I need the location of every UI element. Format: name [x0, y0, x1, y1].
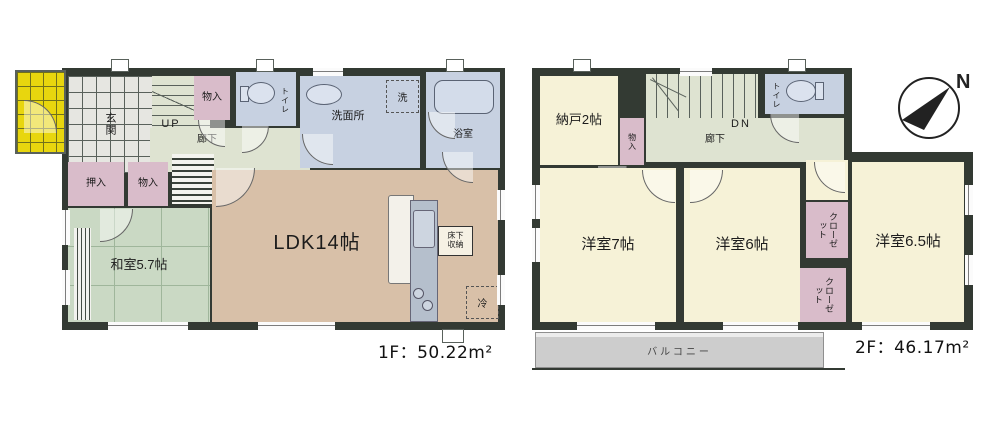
balcony-label: バルコニー — [647, 343, 712, 358]
yukashita-line2: 収納 — [448, 241, 464, 250]
compass-north-label: N — [956, 71, 970, 93]
stove-burner-1 — [413, 288, 424, 299]
closet-oshiire: 押入 — [68, 162, 124, 206]
oshiire-label: 押入 — [86, 178, 106, 190]
stove-burner-2 — [422, 300, 433, 311]
window-room7-west1 — [532, 185, 540, 219]
window-ldk-east2 — [497, 275, 505, 305]
floor1-area-label: 1F：50.22m² — [378, 338, 493, 363]
balcony: バルコニー — [535, 332, 824, 368]
closet-monoire-2f: 物入 — [620, 118, 644, 165]
vent-toilet-2f — [788, 59, 806, 72]
window-stairs-north — [680, 68, 712, 76]
washing-machine-box: 洗 — [386, 80, 419, 113]
window-room65-south — [862, 322, 930, 330]
washitsu-label: 和室5.7帖 — [110, 258, 167, 273]
compass-icon: N — [890, 62, 978, 146]
window-senmenjo-north — [313, 68, 343, 76]
closet-2f-upper-label: クローゼット — [816, 212, 838, 248]
stairs-down — [646, 74, 758, 118]
floor-plan-canvas: 玄関 UP 廊下 物入 トイレ 洗面所 洗 浴室 押入 物入 和室5.7帖 LD… — [0, 0, 1000, 444]
window-room65-east2 — [965, 255, 973, 285]
rouka-2f-label: 廊下 — [694, 130, 736, 145]
bathtub — [434, 80, 494, 114]
nando-label: 納戸2帖 — [556, 113, 602, 128]
ldk-label: LDK14帖 — [252, 228, 382, 252]
room65-label: 洋室6.5帖 — [875, 233, 941, 250]
vent-toilet-1f — [256, 59, 274, 72]
window-washitsu-west2 — [62, 270, 70, 305]
washer-label: 洗 — [398, 89, 408, 104]
monoire-1f-label: 物入 — [138, 178, 158, 190]
toilet-2f-label: トイレ — [770, 76, 783, 114]
stairs-lower-flight — [172, 154, 214, 204]
window-room65-east1 — [965, 185, 973, 215]
window-ldk-east1 — [497, 190, 505, 220]
window-room7-south — [577, 322, 655, 330]
room-yoshitsu65: 洋室6.5帖 — [852, 162, 964, 322]
toilet-1f-label: トイレ — [278, 76, 292, 124]
underfloor-storage-box: 床下 収納 — [438, 226, 473, 256]
vent-bath — [446, 59, 464, 72]
closet-2f-lower: クローゼット — [800, 268, 846, 322]
room-nando: 納戸2帖 — [540, 76, 618, 165]
toilet-2f-bowl — [786, 80, 816, 102]
kitchen-sink — [413, 210, 435, 248]
refrigerator-box: 冷 — [466, 286, 499, 319]
monoire-2f-label: 物入 — [627, 133, 636, 151]
window-room7-west2 — [532, 228, 540, 262]
site-boundary-line — [532, 368, 845, 370]
up-label: UP — [152, 116, 190, 132]
toilet-2f-tank — [815, 82, 824, 100]
vent-nando — [573, 59, 591, 72]
closet-hall-1f-label: 物入 — [202, 92, 222, 104]
window-washitsu-west1 — [62, 210, 70, 245]
genkan-label: 玄関 — [100, 96, 120, 152]
washbasin — [306, 84, 342, 105]
closet-2f-lower-label: クローゼット — [812, 277, 834, 313]
dn-label: DN — [724, 116, 758, 131]
closet-hall-1f: 物入 — [194, 76, 230, 120]
floor2-area-label: 2F：46.17m² — [855, 333, 970, 358]
senmenjo-label: 洗面所 — [318, 106, 378, 124]
window-room6-south — [723, 322, 798, 330]
window-washitsu-south — [108, 322, 188, 330]
vent-genkan — [111, 59, 129, 72]
window-ldk-south — [258, 322, 335, 330]
closet-2f-upper: クローゼット — [806, 202, 848, 258]
room7-label: 洋室7帖 — [581, 236, 634, 253]
closet-monoire-1f: 物入 — [128, 162, 168, 206]
fridge-label: 冷 — [478, 295, 488, 310]
amado-shutter-rail — [74, 228, 91, 320]
toilet-1f-bowl — [247, 82, 275, 104]
room6-label: 洋室6帖 — [715, 236, 768, 253]
